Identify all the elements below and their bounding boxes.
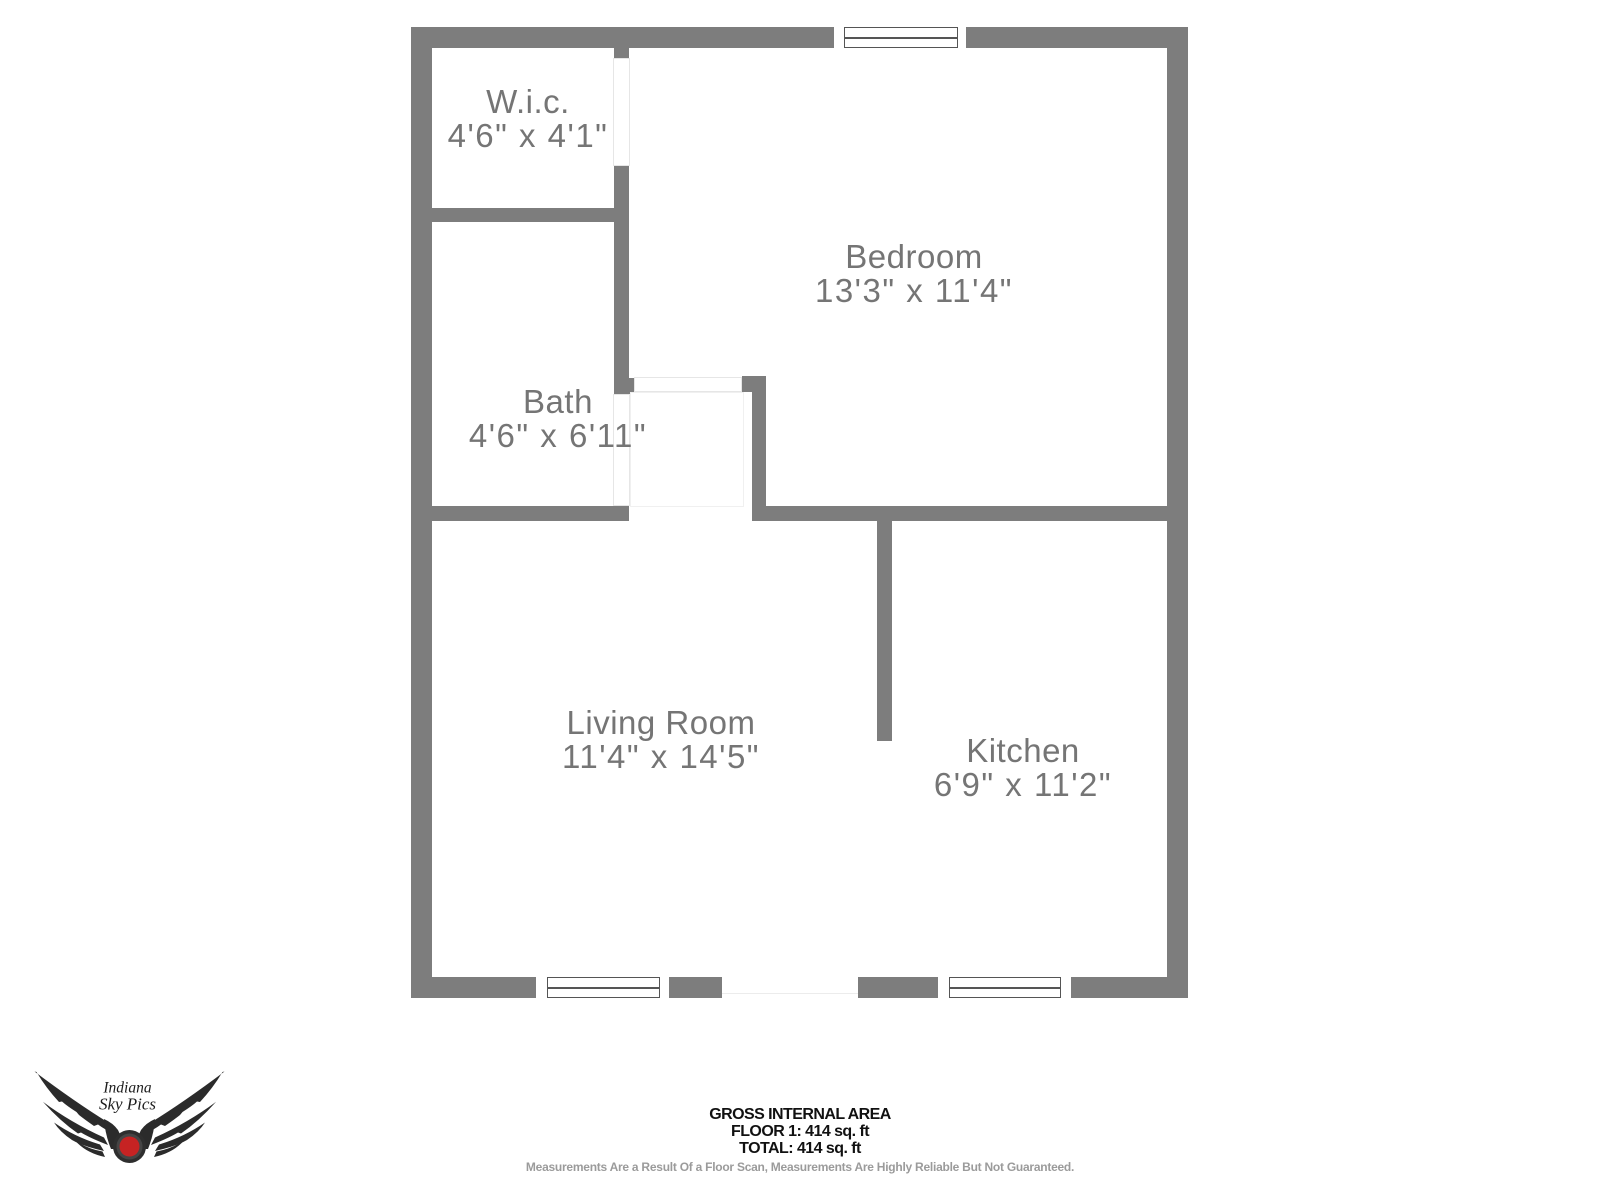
svg-text:Sky Pics: Sky Pics <box>99 1095 156 1114</box>
